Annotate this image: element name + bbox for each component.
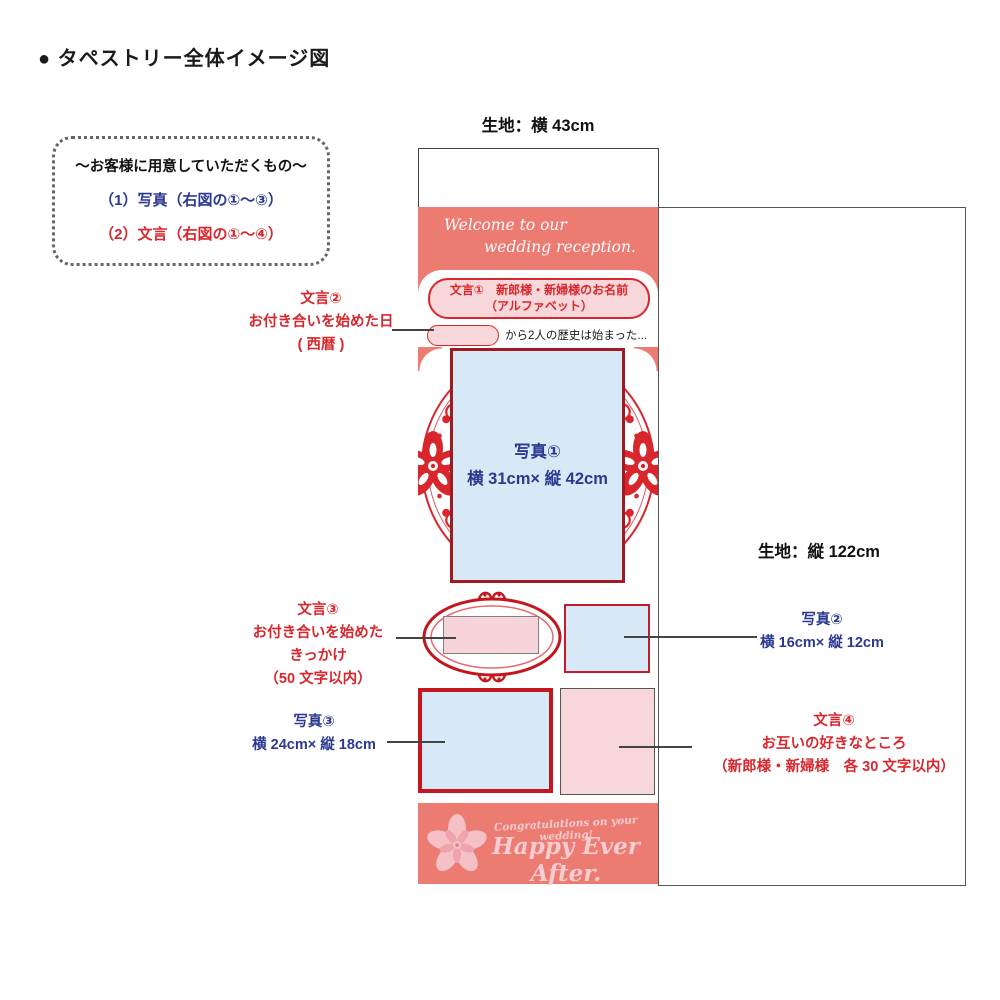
annotation-text4-line1: お互いの好きなところ	[681, 733, 987, 756]
connector-line-photo3	[387, 741, 445, 743]
photo1-placeholder: 写真① 横 31cm× 縦 42cm	[450, 348, 625, 583]
annotation-photo3-title: 写真③	[214, 711, 414, 734]
annotation-photo2-title: 写真②	[722, 609, 922, 632]
text4-placeholder	[560, 688, 655, 795]
text2-date-pill	[427, 325, 499, 346]
corner-wedge-left	[418, 347, 442, 371]
fabric-height-label: 生地：縦 122cm	[758, 538, 880, 562]
annotation-photo2: 写真② 横 16cm× 縦 12cm	[722, 609, 922, 655]
text3-placeholder	[443, 616, 539, 654]
annotation-text3-title: 文言③	[218, 599, 418, 622]
footer-band: Congratulations on your wedding! Happy E…	[418, 803, 658, 884]
footer-happy-ever-after-text: Happy Ever After.	[476, 833, 656, 887]
annotation-text3-line1: お付き合いを始めた	[218, 622, 418, 645]
annotation-text4-line2: （新郎様・新婦様 各 30 文字以内）	[681, 756, 987, 779]
note-item-texts: （2）文言（右図の①〜④）	[55, 223, 327, 244]
annotation-text2-line2: ( 西暦 )	[221, 334, 421, 357]
note-heading: 〜お客様に用意していただくもの〜	[55, 155, 327, 176]
names-section: 文言① 新郎様・新婦様のお名前 （アルファベット） から2人の歴史は始まった..…	[418, 270, 658, 347]
text1-name-pill: 文言① 新郎様・新婦様のお名前 （アルファベット）	[428, 278, 650, 319]
diagram-canvas: ● タペストリー全体イメージ図 〜お客様に用意していただくもの〜 （1）写真（右…	[0, 0, 1000, 1000]
annotation-text3-line2: きっかけ	[218, 645, 418, 668]
text1-line1: 文言① 新郎様・新婦様のお名前	[450, 283, 628, 299]
photo1-title: 写真①	[514, 439, 561, 465]
photo1-size: 横 31cm× 縦 42cm	[467, 466, 608, 492]
annotation-text2-line1: お付き合いを始めた日	[221, 311, 421, 334]
page-title: ● タペストリー全体イメージ図	[38, 42, 330, 71]
corner-wedge-right	[634, 347, 658, 371]
fabric-width-bracket	[418, 148, 659, 208]
welcome-text-line1: Welcome to our	[444, 216, 567, 234]
welcome-text-line2: wedding reception.	[484, 238, 636, 256]
annotation-text4-title: 文言④	[681, 710, 987, 733]
annotation-text3: 文言③ お付き合いを始めた きっかけ （50 文字以内）	[218, 599, 418, 691]
annotation-text2-title: 文言②	[221, 288, 421, 311]
annotation-text4: 文言④ お互いの好きなところ （新郎様・新婦様 各 30 文字以内）	[681, 710, 987, 779]
annotation-text3-line3: （50 文字以内）	[218, 668, 418, 691]
annotation-photo3-size: 横 24cm× 縦 18cm	[214, 734, 414, 757]
connector-line-photo2	[624, 636, 757, 638]
connector-line-text3	[396, 637, 456, 639]
main-photo-section: 写真① 横 31cm× 縦 42cm	[418, 347, 658, 585]
annotation-photo3: 写真③ 横 24cm× 縦 18cm	[214, 711, 414, 757]
tapestry-mockup: Welcome to our wedding reception. 文言① 新郎…	[418, 207, 658, 884]
fabric-width-label: 生地：横 43cm	[418, 112, 658, 136]
photo2-placeholder	[564, 604, 650, 673]
connector-line-text4	[619, 746, 692, 748]
note-item-photos: （1）写真（右図の①〜③）	[55, 189, 327, 210]
connector-line-text2	[392, 329, 434, 331]
annotation-text2: 文言② お付き合いを始めた日 ( 西暦 )	[221, 288, 421, 357]
date-sentence: から2人の歴史は始まった...	[505, 327, 647, 343]
customer-items-note-box: 〜お客様に用意していただくもの〜 （1）写真（右図の①〜③） （2）文言（右図の…	[52, 136, 330, 266]
text1-line2: （アルファベット）	[485, 299, 593, 315]
